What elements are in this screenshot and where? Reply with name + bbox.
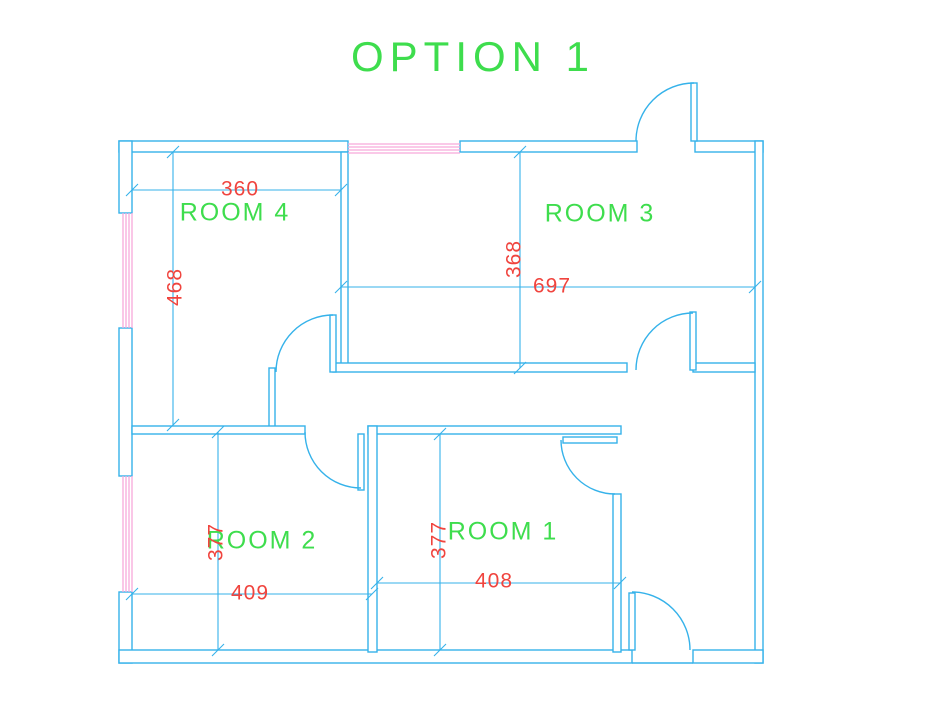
dim-room3-width: 697 <box>533 276 571 297</box>
room1-door <box>561 437 617 494</box>
wall <box>693 650 763 663</box>
wall <box>693 363 755 372</box>
wall <box>119 141 132 213</box>
floor-plan-canvas: OPTION 1 ROOM 4 ROOM 3 ROOM 2 ROOM 1 360… <box>0 0 941 706</box>
dim-room3-height: 368 <box>504 240 525 278</box>
wall <box>368 426 377 652</box>
room-1-label: ROOM 1 <box>448 520 559 545</box>
dim-room2-width: 409 <box>231 583 269 604</box>
room3-door <box>636 312 696 370</box>
dim-room1-height: 377 <box>429 521 450 559</box>
door-arc <box>276 315 333 372</box>
left-lower-window-hatch <box>123 476 132 592</box>
room4-door <box>276 315 336 372</box>
entrance-door-top <box>636 83 697 141</box>
door-arc <box>305 432 361 488</box>
wall <box>368 426 621 434</box>
left-upper-window-hatch <box>123 213 132 328</box>
door-arc <box>561 440 615 494</box>
room-4-label: ROOM 4 <box>180 201 291 226</box>
dim-room1-width: 408 <box>475 571 513 592</box>
door-arc <box>636 313 693 370</box>
floor-plan-drawing <box>0 0 941 706</box>
wall <box>613 494 621 652</box>
plan-title: OPTION 1 <box>351 36 595 78</box>
wall <box>695 141 763 152</box>
room2-door <box>305 432 364 490</box>
top-window-hatch <box>348 144 460 153</box>
wall <box>119 141 348 152</box>
exit-door-bottom <box>629 592 690 650</box>
room-3-label: ROOM 3 <box>545 202 656 227</box>
wall <box>269 368 275 427</box>
wall <box>460 141 637 152</box>
wall <box>755 141 763 663</box>
dim-room4-width: 360 <box>221 179 259 200</box>
dim-room4-height: 468 <box>165 268 186 306</box>
door-arc <box>636 83 694 141</box>
door-arc <box>632 592 690 650</box>
dim-room2-height: 377 <box>206 523 227 561</box>
wall <box>119 328 132 476</box>
wall <box>333 363 627 372</box>
